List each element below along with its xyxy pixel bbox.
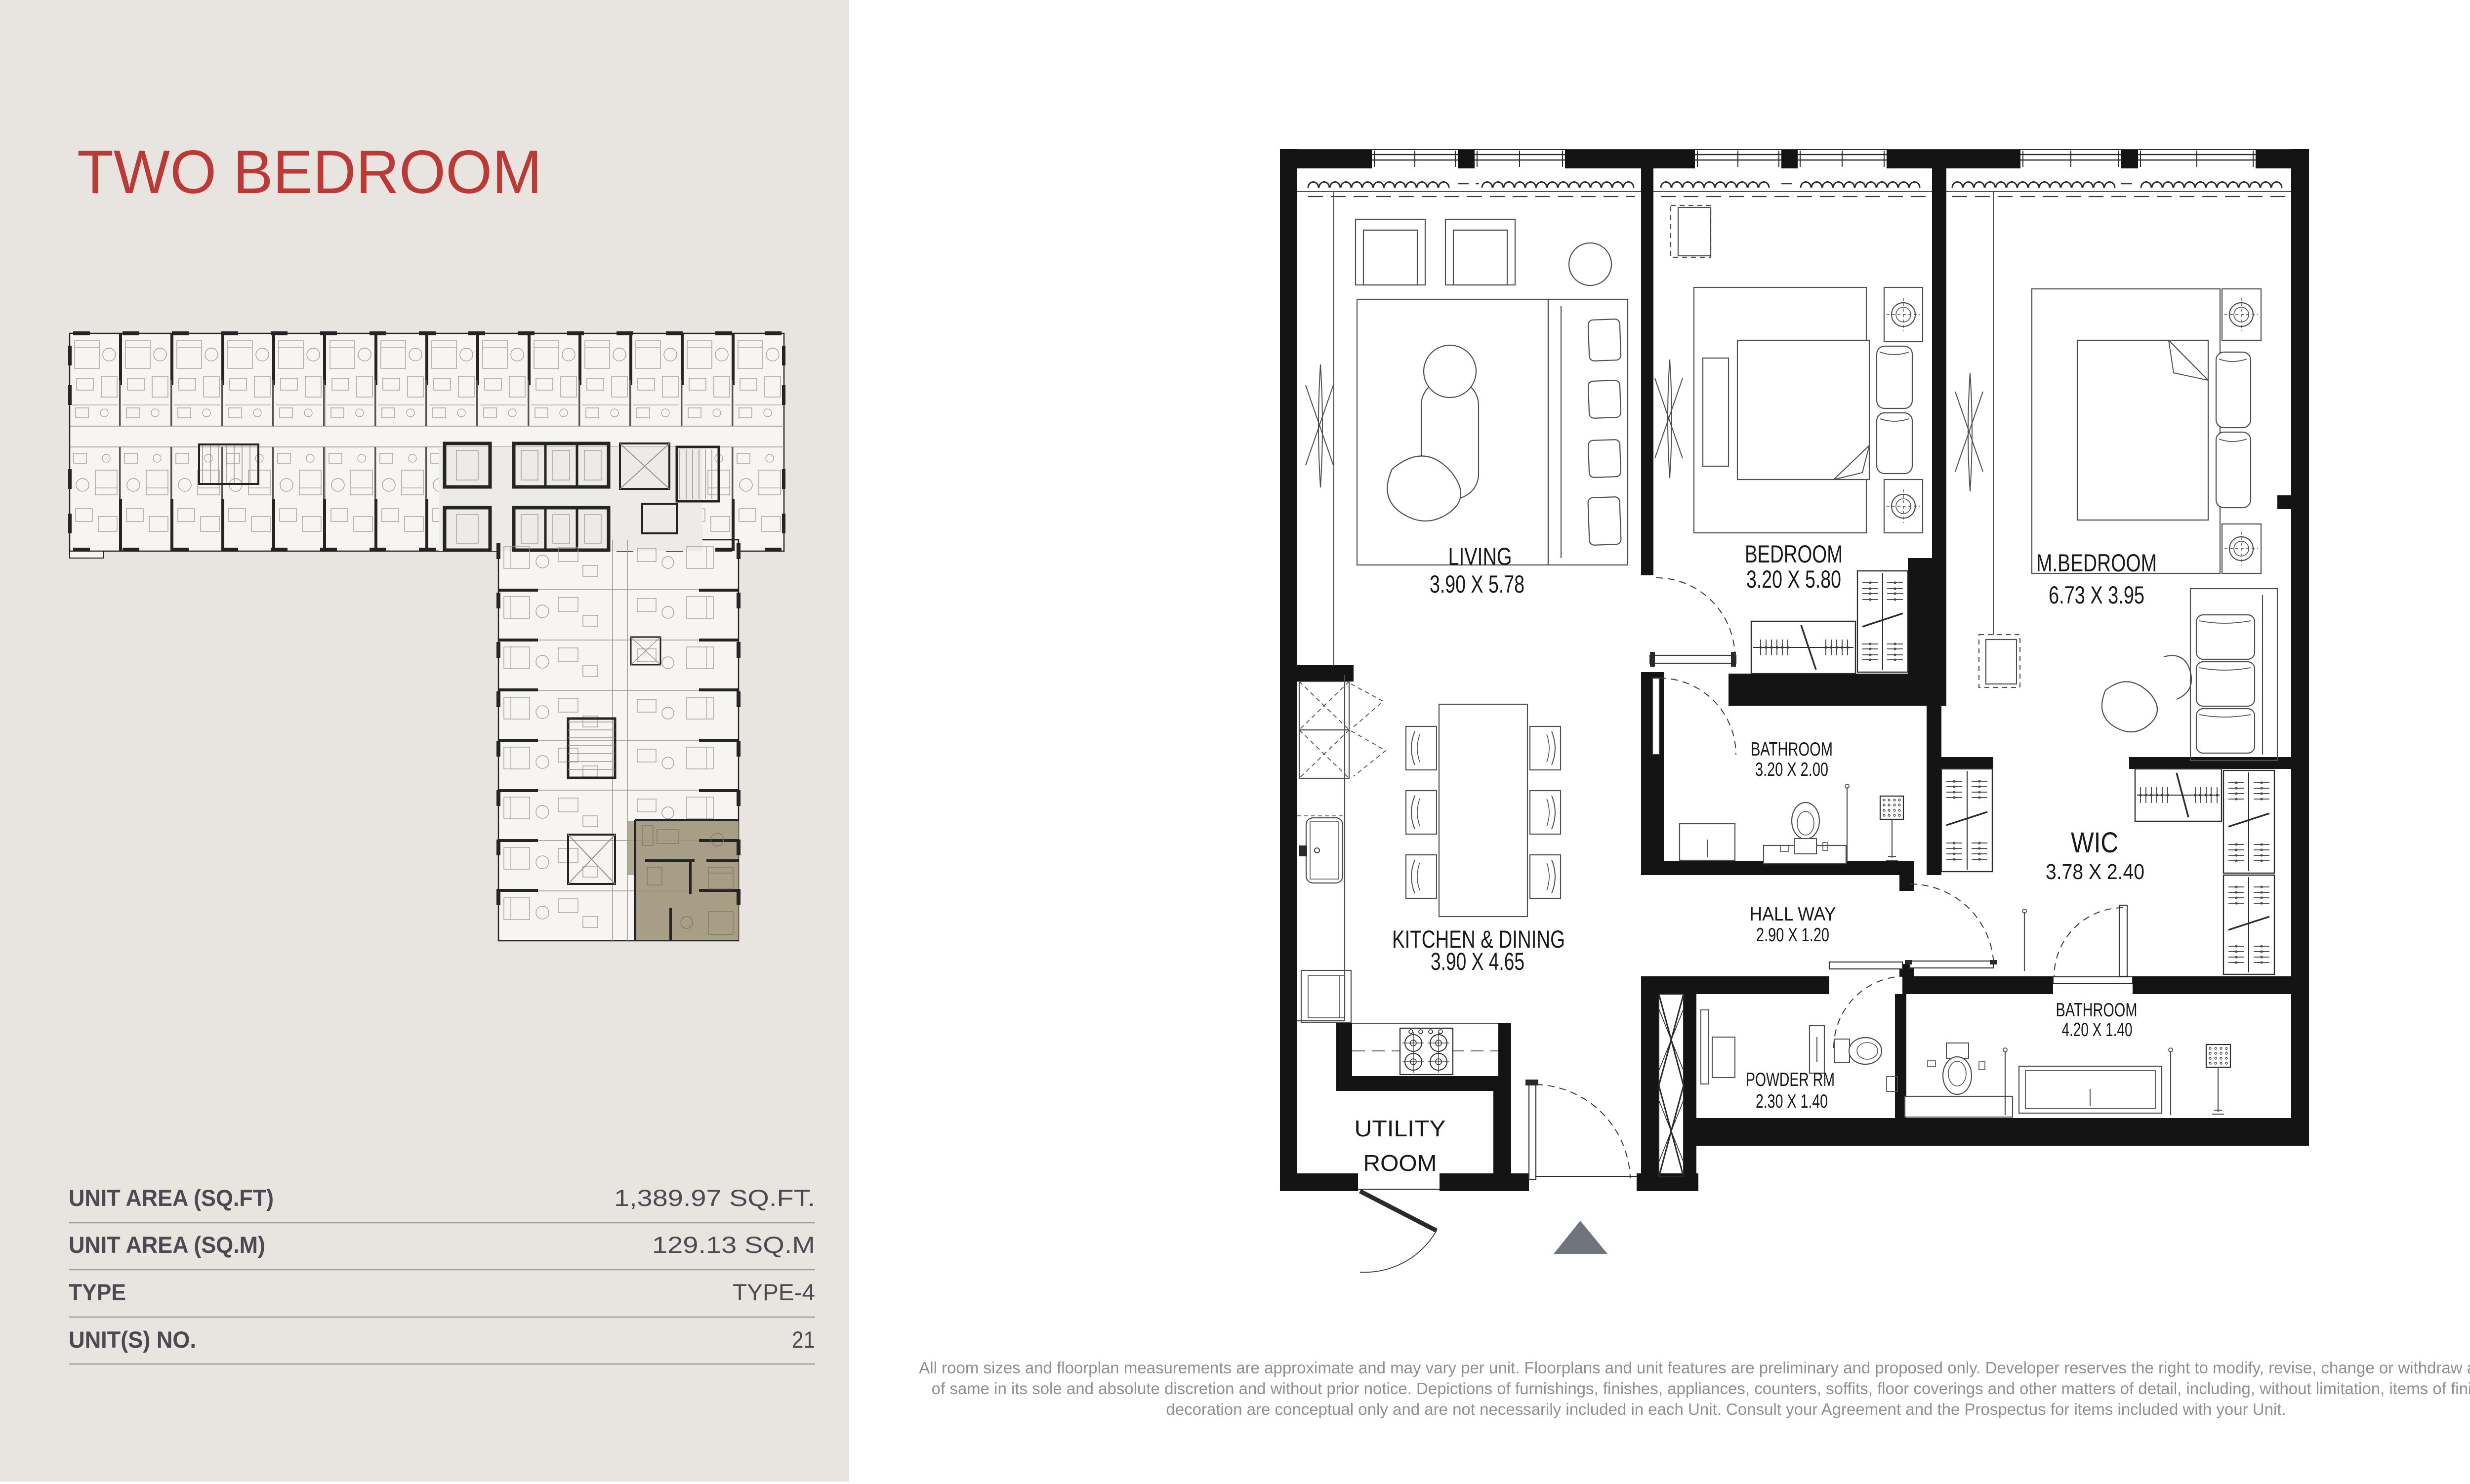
svg-text:UNIT AREA (SQ.FT): UNIT AREA (SQ.FT) bbox=[69, 1185, 274, 1211]
svg-text:BATHROOM: BATHROOM bbox=[1751, 739, 1833, 760]
svg-text:TYPE: TYPE bbox=[69, 1279, 126, 1305]
svg-text:3.20 X 5.80: 3.20 X 5.80 bbox=[1746, 565, 1841, 593]
svg-text:LIVING: LIVING bbox=[1448, 543, 1512, 570]
svg-text:POWDER RM: POWDER RM bbox=[1746, 1069, 1835, 1090]
svg-text:1,389.97 SQ.FT.: 1,389.97 SQ.FT. bbox=[614, 1185, 815, 1211]
svg-text:6.73 X 3.95: 6.73 X 3.95 bbox=[2049, 581, 2144, 609]
svg-text:of same in its sole and absolu: of same in its sole and absolute discret… bbox=[932, 1379, 2470, 1398]
svg-text:BEDROOM: BEDROOM bbox=[1745, 540, 1843, 568]
svg-text:All room sizes and floorplan m: All room sizes and floorplan measurement… bbox=[919, 1359, 2470, 1377]
svg-text:3.20 X 2.00: 3.20 X 2.00 bbox=[1755, 759, 1828, 780]
svg-text:M.BEDROOM: M.BEDROOM bbox=[2036, 549, 2157, 577]
svg-text:BATHROOM: BATHROOM bbox=[2056, 1000, 2138, 1021]
svg-text:3.90 X 5.78: 3.90 X 5.78 bbox=[1430, 570, 1524, 598]
svg-text:2.30 X 1.40: 2.30 X 1.40 bbox=[1756, 1091, 1828, 1112]
svg-text:WIC: WIC bbox=[2071, 827, 2118, 859]
svg-text:HALL WAY: HALL WAY bbox=[1750, 904, 1836, 925]
svg-text:UNIT(S) NO.: UNIT(S) NO. bbox=[69, 1326, 196, 1353]
svg-text:TYPE-4: TYPE-4 bbox=[733, 1279, 815, 1305]
svg-text:4.20 X 1.40: 4.20 X 1.40 bbox=[2062, 1019, 2133, 1041]
svg-text:ROOM: ROOM bbox=[1363, 1150, 1437, 1176]
svg-text:3.78 X 2.40: 3.78 X 2.40 bbox=[2046, 860, 2144, 884]
svg-text:21: 21 bbox=[792, 1326, 815, 1353]
svg-text:TWO BEDROOM: TWO BEDROOM bbox=[77, 138, 542, 206]
svg-text:decoration are conceptual only: decoration are conceptual only and are n… bbox=[1166, 1400, 2286, 1418]
svg-text:2.90 X 1.20: 2.90 X 1.20 bbox=[1756, 924, 1829, 946]
svg-text:129.13 SQ.M: 129.13 SQ.M bbox=[652, 1232, 815, 1258]
svg-text:3.90 X 4.65: 3.90 X 4.65 bbox=[1431, 948, 1524, 975]
svg-text:UNIT AREA (SQ.M): UNIT AREA (SQ.M) bbox=[69, 1232, 265, 1258]
svg-text:UTILITY: UTILITY bbox=[1355, 1116, 1446, 1141]
